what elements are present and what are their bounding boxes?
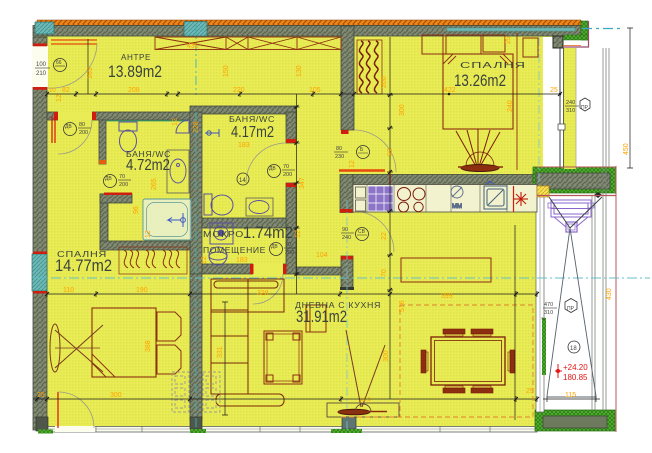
svg-text:МОКРО: МОКРО xyxy=(203,229,244,239)
svg-text:4.72m2: 4.72m2 xyxy=(126,157,170,174)
svg-text:⌀1,5: ⌀1,5 xyxy=(360,397,371,403)
svg-text:12: 12 xyxy=(56,94,63,102)
svg-text:399: 399 xyxy=(441,293,453,300)
svg-text:66: 66 xyxy=(56,60,62,66)
svg-text:10: 10 xyxy=(49,88,56,94)
svg-text:310: 310 xyxy=(544,310,553,316)
svg-text:265: 265 xyxy=(151,178,158,190)
svg-text:240: 240 xyxy=(566,100,575,106)
svg-text:70: 70 xyxy=(285,242,291,248)
svg-text:183: 183 xyxy=(238,142,250,149)
svg-text:130: 130 xyxy=(296,65,303,77)
svg-text:13.26m2: 13.26m2 xyxy=(454,72,506,90)
svg-text:96: 96 xyxy=(133,206,140,214)
svg-text:347: 347 xyxy=(299,177,306,189)
svg-text:190: 190 xyxy=(136,287,148,294)
svg-text:92: 92 xyxy=(387,148,394,156)
svg-text:70: 70 xyxy=(283,164,289,170)
svg-text:СПАЛНЯ: СПАЛНЯ xyxy=(460,60,526,70)
svg-text:13.89m2: 13.89m2 xyxy=(108,62,162,81)
svg-text:331: 331 xyxy=(217,346,224,358)
svg-text:4.17m2: 4.17m2 xyxy=(231,124,274,141)
svg-text:300: 300 xyxy=(399,104,406,116)
svg-text:ДВ: ДВ xyxy=(271,244,278,250)
svg-text:12: 12 xyxy=(172,118,179,126)
svg-text:388: 388 xyxy=(145,340,152,352)
svg-text:210: 210 xyxy=(36,71,47,77)
svg-text:ДВ: ДВ xyxy=(269,166,276,172)
svg-text:БАНЯ/WC: БАНЯ/WC xyxy=(229,114,275,124)
svg-text:430: 430 xyxy=(606,288,613,300)
svg-text:228: 228 xyxy=(193,121,200,133)
svg-text:470: 470 xyxy=(544,302,553,308)
svg-text:80: 80 xyxy=(79,122,85,128)
svg-text:80: 80 xyxy=(336,146,342,152)
svg-text:31.91m2: 31.91m2 xyxy=(296,308,347,326)
svg-text:14.77m2: 14.77m2 xyxy=(55,256,112,275)
svg-text:ПР: ПР xyxy=(567,306,575,312)
svg-text:12: 12 xyxy=(145,230,152,238)
svg-text:1.74m2: 1.74m2 xyxy=(243,224,293,242)
svg-text:105: 105 xyxy=(309,87,321,94)
svg-text:240: 240 xyxy=(342,235,351,241)
svg-text:тк: тк xyxy=(541,316,545,321)
svg-text:180.85: 180.85 xyxy=(563,373,588,382)
svg-text:12: 12 xyxy=(295,230,302,238)
svg-text:82: 82 xyxy=(62,87,70,94)
svg-text:200: 200 xyxy=(119,182,128,188)
svg-text:435: 435 xyxy=(187,43,199,50)
svg-text:104: 104 xyxy=(316,252,328,259)
svg-text:СВ: СВ xyxy=(358,229,366,235)
svg-text:12: 12 xyxy=(201,256,208,264)
svg-text:310: 310 xyxy=(566,108,575,114)
svg-text:14: 14 xyxy=(239,178,246,184)
svg-text:70: 70 xyxy=(381,269,388,277)
svg-text:90: 90 xyxy=(342,227,348,233)
svg-text:200: 200 xyxy=(285,250,294,256)
svg-text:300: 300 xyxy=(383,350,390,362)
svg-text:328: 328 xyxy=(257,290,269,297)
svg-text:25: 25 xyxy=(37,392,45,399)
svg-text:MM: MM xyxy=(452,204,462,210)
svg-text:200: 200 xyxy=(79,130,88,136)
svg-text:25: 25 xyxy=(550,87,558,94)
svg-text:115: 115 xyxy=(565,392,576,399)
svg-text:240: 240 xyxy=(507,100,514,112)
svg-text:208: 208 xyxy=(128,87,140,94)
svg-text:ДВ: ДВ xyxy=(105,176,112,182)
svg-text:230: 230 xyxy=(335,154,344,160)
svg-text:12: 12 xyxy=(349,160,356,168)
svg-text:150: 150 xyxy=(223,65,230,77)
svg-text:163: 163 xyxy=(87,67,94,79)
svg-text:25: 25 xyxy=(505,36,512,44)
svg-text:22: 22 xyxy=(381,232,388,240)
svg-text:ПР: ПР xyxy=(581,105,589,111)
svg-text:450: 450 xyxy=(623,143,630,155)
svg-text:110: 110 xyxy=(63,287,74,294)
svg-text:18: 18 xyxy=(570,346,577,352)
svg-text:220: 220 xyxy=(233,87,245,94)
svg-text:100: 100 xyxy=(36,62,47,68)
svg-text:300: 300 xyxy=(110,392,122,399)
svg-text:+24.20: +24.20 xyxy=(563,363,588,372)
svg-text:200: 200 xyxy=(381,76,388,88)
svg-text:70: 70 xyxy=(119,174,125,180)
svg-text:200: 200 xyxy=(283,172,292,178)
svg-text:183: 183 xyxy=(236,257,248,264)
svg-text:АНТРЕ: АНТРЕ xyxy=(121,52,151,62)
svg-text:ДВ: ДВ xyxy=(65,124,72,130)
svg-text:ПОМЕЩЕНИЕ: ПОМЕЩЕНИЕ xyxy=(203,245,266,255)
